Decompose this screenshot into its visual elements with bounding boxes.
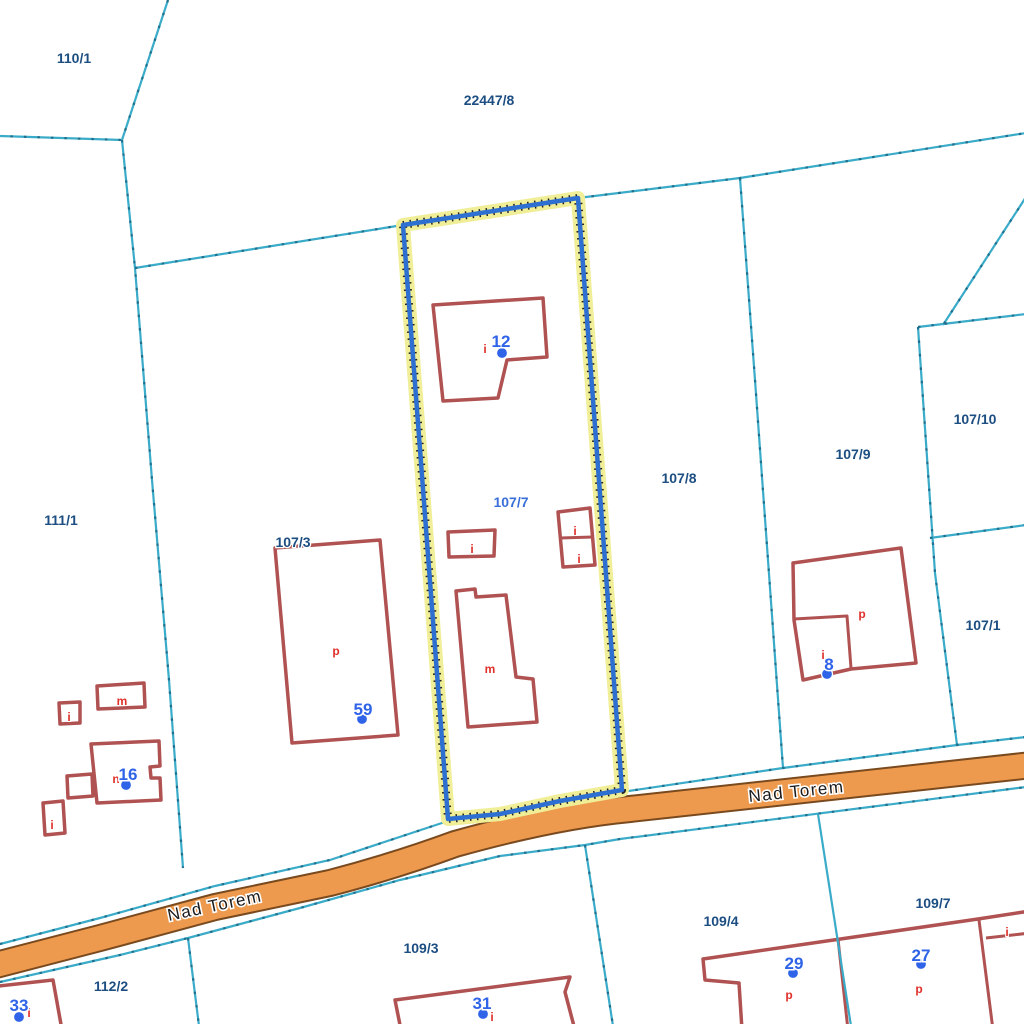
building-letter: i [50,818,53,832]
house-number-text: 12 [492,332,511,351]
parcel-label-109/7[interactable]: 109/7 [915,895,950,911]
building-house-12 [433,298,547,401]
parcel-label-22447/8[interactable]: 22447/8 [464,92,515,108]
parcel-label-107/10[interactable]: 107/10 [954,411,997,427]
building-letter: i [577,552,580,566]
house-number-text: 8 [824,655,833,674]
building-letter: i [483,342,486,356]
building-row-109 [703,911,1024,1024]
house-number-text: 31 [473,994,492,1013]
parcel-label-107/8[interactable]: 107/8 [661,470,696,486]
parcel-label-112/2[interactable]: 112/2 [94,978,128,994]
parcel-label-107/9[interactable]: 107/9 [835,446,870,462]
parcel-label-111/1[interactable]: 111/1 [44,512,78,528]
house-number-text: 27 [912,946,931,965]
building-letter: i [470,542,473,556]
building-house-16-annex [67,774,93,798]
parcel-boundaries [0,0,1024,1024]
parcel-label-110/1[interactable]: 110/1 [57,50,91,66]
parcel-label-109/4[interactable]: 109/4 [703,913,738,929]
building-letter: i [67,710,70,724]
house-number-text: 29 [785,954,804,973]
house-number-text: 33 [10,996,29,1015]
building-letter: p [915,982,922,996]
building-107-3 [275,540,398,743]
building-letter: m [485,662,496,676]
boundary-survey-dots [0,0,1024,1024]
building-letter: m [117,694,128,708]
parcel-label-107/1[interactable]: 107/1 [965,617,1000,633]
map-canvas: Nad ToremNad Torem 110/122447/8111/1107/… [0,0,1024,1024]
building-letter: p [858,607,865,621]
building-i-bottom-left [43,801,65,835]
parcel-label-107/7[interactable]: 107/7 [493,494,528,510]
house-number-text: 59 [354,700,373,719]
cadastral-map[interactable]: Nad ToremNad Torem 110/122447/8111/1107/… [0,0,1024,1024]
building-letter: p [332,644,339,658]
building-house-8 [793,548,916,680]
boundary-lines [0,0,1024,1024]
house-number-8[interactable]: 8 [822,655,834,680]
building-m-central [456,589,537,727]
parcel-label-109/3[interactable]: 109/3 [403,940,438,956]
house-number-text: 16 [119,765,138,784]
building-letter: i [1005,925,1008,939]
building-letter: p [785,988,792,1002]
parcel-label-107/3[interactable]: 107/3 [275,534,310,550]
building-letter: i [573,524,576,538]
